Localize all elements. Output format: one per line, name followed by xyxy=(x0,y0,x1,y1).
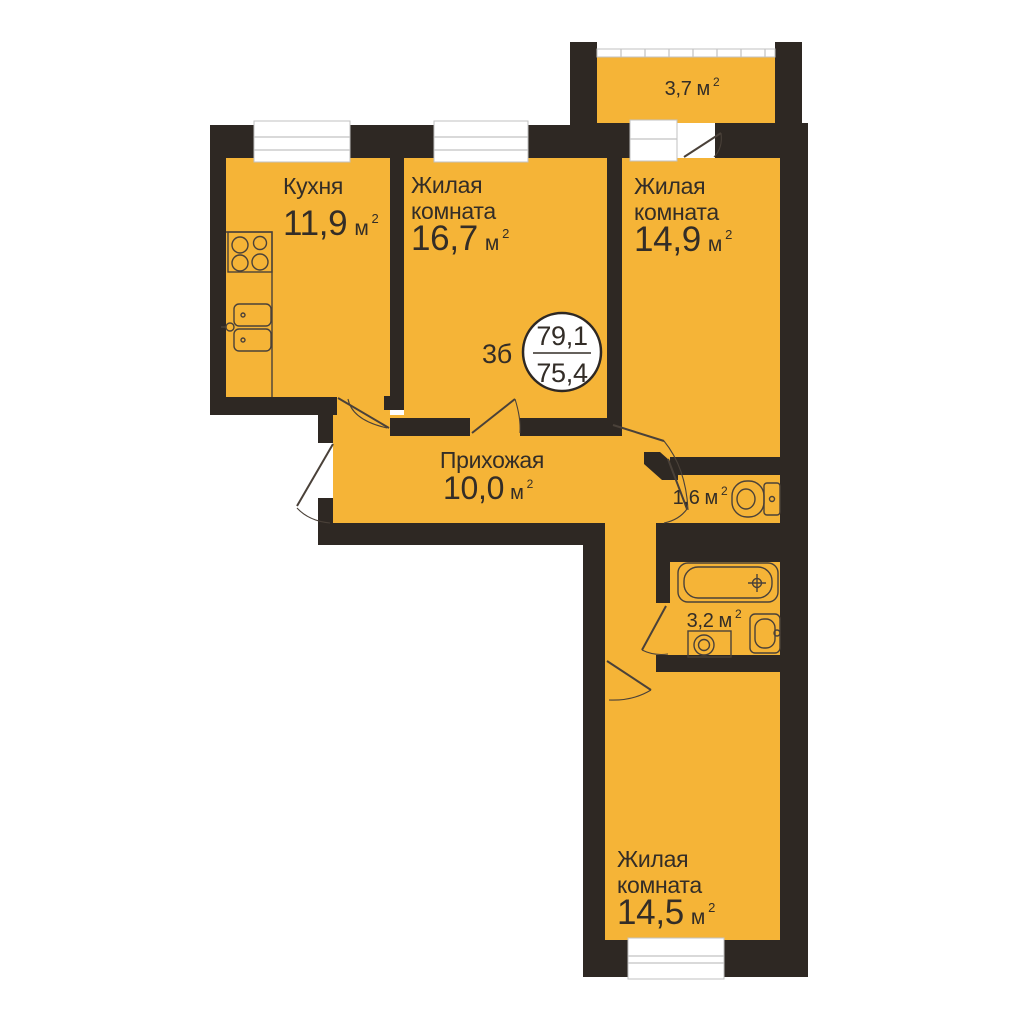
balcony-left-wall xyxy=(570,42,597,158)
kitchen-window xyxy=(254,121,350,162)
wall xyxy=(318,415,333,443)
wall xyxy=(656,562,670,603)
wall xyxy=(670,457,780,475)
hallway-bottom-wall xyxy=(318,523,605,545)
wall xyxy=(342,125,440,158)
kitchen-door-gap xyxy=(337,396,390,418)
wc-bath-divider-wall xyxy=(656,523,780,562)
left-outer-wall xyxy=(210,125,226,415)
floor-plan-canvas: Кухня 11,9м2 Жилая комната 16,7м2 Жилая … xyxy=(0,0,1024,1024)
balcony-right-wall xyxy=(775,42,802,123)
living-area-value: 75,4 xyxy=(536,358,588,388)
plan-type-label: 3б xyxy=(482,339,512,369)
living1-window xyxy=(434,121,528,162)
wall xyxy=(597,123,632,158)
wall xyxy=(318,498,333,523)
living2-label-line1: Жилая xyxy=(634,173,705,199)
total-area-value: 79,1 xyxy=(536,321,587,351)
living3-window xyxy=(628,938,724,979)
kitchen-bottom-wall xyxy=(210,397,337,415)
corridor-left-wall xyxy=(583,545,605,977)
kitchen-label: Кухня xyxy=(283,173,343,199)
right-outer-wall xyxy=(780,123,808,977)
balcony-window xyxy=(630,120,677,161)
living-divider-wall xyxy=(607,158,622,425)
wall xyxy=(715,123,780,158)
wall xyxy=(520,418,622,436)
kitchen-divider-wall xyxy=(390,158,404,398)
door-stop xyxy=(384,396,404,410)
living1-label-line1: Жилая xyxy=(411,172,482,198)
area-badge: 79,1 75,4 xyxy=(523,313,601,391)
floor-plan-page: Кухня 11,9м2 Жилая комната 16,7м2 Жилая … xyxy=(0,0,1024,1024)
balcony-railing xyxy=(597,49,775,57)
wall xyxy=(390,418,470,436)
living3-label-line1: Жилая xyxy=(617,846,688,872)
